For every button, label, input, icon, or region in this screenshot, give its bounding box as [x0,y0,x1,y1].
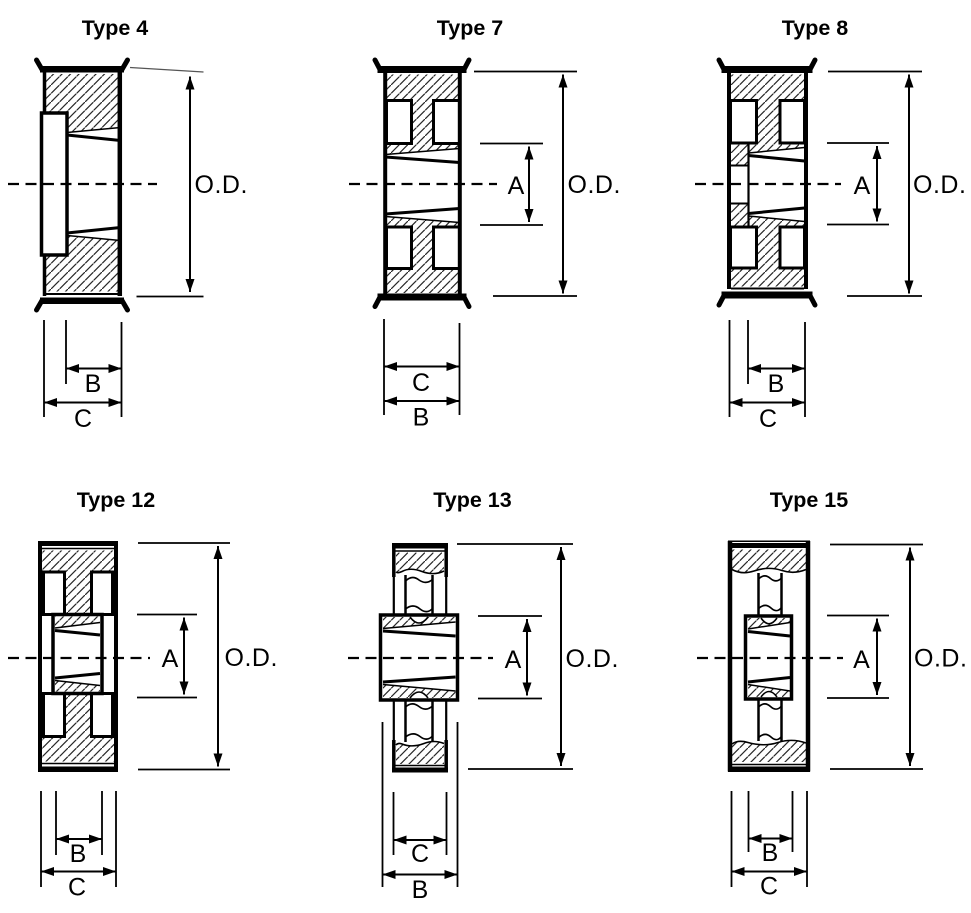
break-line [406,606,433,612]
taper-bore-line [67,135,121,141]
c-label: C [760,873,778,901]
flange-tip [810,296,815,306]
lightening-pocket [92,694,113,737]
flange-tip [719,60,724,70]
figure-title: Type 8 [782,16,849,40]
rim-bar-top [392,543,448,549]
lightening-pocket [44,694,65,737]
break-line [406,704,433,709]
od-label: O.D. [195,171,248,199]
pulley-types-diagram-sheet: Type 4 O.D. B C Type 7 [0,0,971,913]
flange-bar-bottom [722,292,813,299]
flange-tip [37,60,43,70]
lightening-pocket [780,101,805,144]
od-label: O.D. [568,171,621,199]
od-label: O.D. [914,645,967,673]
hatched-rim-bottom [732,740,806,762]
flange-bar-top [722,66,813,73]
b-label: B [85,370,102,398]
lightening-pocket [780,227,805,268]
figure-type-8: Type 8 A O.D. B [695,16,966,433]
od-extension-line [130,68,204,73]
figure-type-15: Type 15 A O. [697,488,967,901]
lightening-pocket [92,572,113,615]
lightening-pocket [731,227,757,268]
flange-tip [122,60,128,70]
b-label: B [413,404,430,432]
taper-bore-line [749,208,805,214]
od-label: O.D. [566,645,619,673]
rim-bar-top [38,541,118,546]
figure-title: Type 4 [82,16,149,40]
flange-tip [122,301,128,311]
figure-type-13: Type 13 [348,488,619,904]
break-line [406,577,433,582]
figure-type-12: Type 12 A O.D. B C [8,488,278,902]
flange-tip [464,297,469,307]
c-label: C [68,874,86,902]
flange-tip [719,296,724,306]
hatched-rim-top [732,550,806,573]
rim-bar-top [728,543,810,548]
figure-type-7: Type 7 A O.D. C B [349,16,621,432]
od-label: O.D. [225,644,278,672]
a-label: A [505,646,522,674]
flange-bar-bottom [40,298,124,305]
figure-type-4: Type 4 O.D. B C [8,16,248,433]
break-line [759,734,782,739]
lightening-pocket [434,227,460,269]
break-line [759,704,782,709]
lightening-pocket [387,227,412,269]
b-label: B [412,876,429,904]
lightening-pocket [434,101,460,144]
flange-bar-top [378,66,467,73]
lightening-pocket [387,101,412,144]
b-label: B [768,370,785,398]
flange-bar-top [40,66,124,73]
a-label: A [854,172,871,200]
flange-bar-bottom [378,294,467,301]
break-line [759,576,782,581]
od-label: O.D. [913,171,966,199]
c-label: C [74,405,92,433]
b-label: B [70,840,87,868]
lightening-pocket [44,572,65,615]
diagram-canvas: Type 4 O.D. B C Type 7 [0,0,971,913]
taper-bore-line [386,209,460,215]
figure-title: Type 12 [77,488,156,512]
rim-bar-bottom [728,767,810,773]
break-line [406,734,433,739]
c-label: C [759,405,777,433]
a-label: A [853,646,870,674]
flange-tip [37,301,43,311]
rim-bar-bottom [392,768,448,773]
taper-bore-line [386,157,460,163]
lightening-pocket [731,101,757,144]
figure-title: Type 15 [770,488,849,512]
a-label: A [508,172,525,200]
flange-tip [375,297,380,307]
figure-title: Type 7 [437,16,504,40]
a-label: A [162,645,179,673]
flange-tip [464,60,469,70]
break-line [759,605,782,610]
taper-bore-line [749,156,805,162]
flange-tip [375,60,380,70]
figure-title: Type 13 [433,488,512,512]
rim-bar-bottom [38,767,118,773]
c-label: C [411,840,429,868]
c-label: C [412,369,430,397]
flange-tip [810,60,815,70]
b-label: B [762,839,779,867]
taper-bore-line [67,228,121,234]
